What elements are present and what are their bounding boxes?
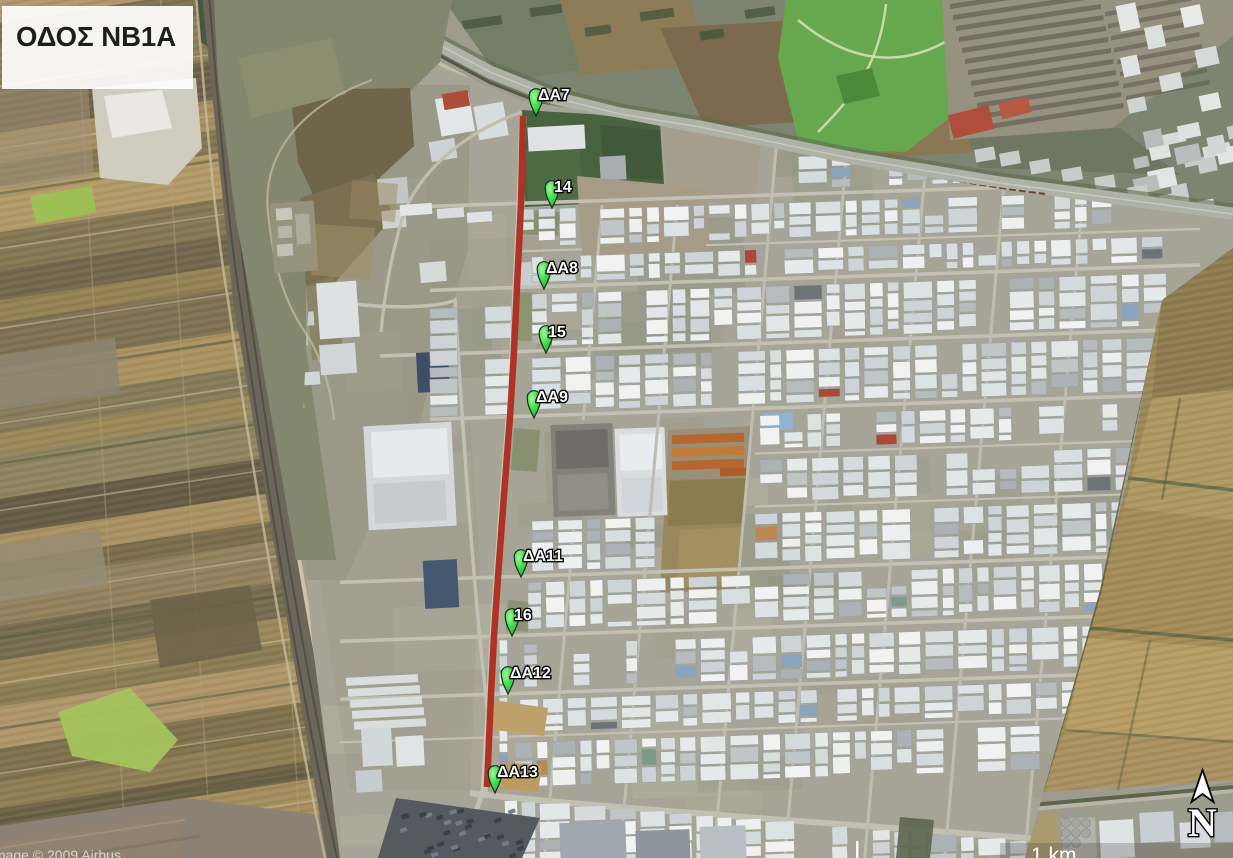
svg-text:Image © 2009 Airbus: Image © 2009 Airbus	[0, 847, 121, 858]
svg-text:16: 16	[514, 607, 532, 624]
svg-text:ΔΑ11: ΔΑ11	[523, 548, 563, 565]
svg-text:14: 14	[554, 179, 572, 196]
svg-text:ΔΑ9: ΔΑ9	[536, 389, 568, 406]
svg-text:ΟΔΟΣ ΝΒ1Α: ΟΔΟΣ ΝΒ1Α	[16, 21, 176, 52]
svg-text:1 km: 1 km	[1031, 844, 1077, 858]
svg-text:15: 15	[548, 324, 566, 341]
svg-text:ΔΑ7: ΔΑ7	[538, 87, 570, 104]
svg-text:ΔΑ8: ΔΑ8	[546, 260, 578, 277]
svg-text:ΔΑ12: ΔΑ12	[510, 665, 551, 682]
svg-text:ΔΑ13: ΔΑ13	[497, 764, 538, 781]
svg-text:N: N	[1188, 800, 1217, 845]
